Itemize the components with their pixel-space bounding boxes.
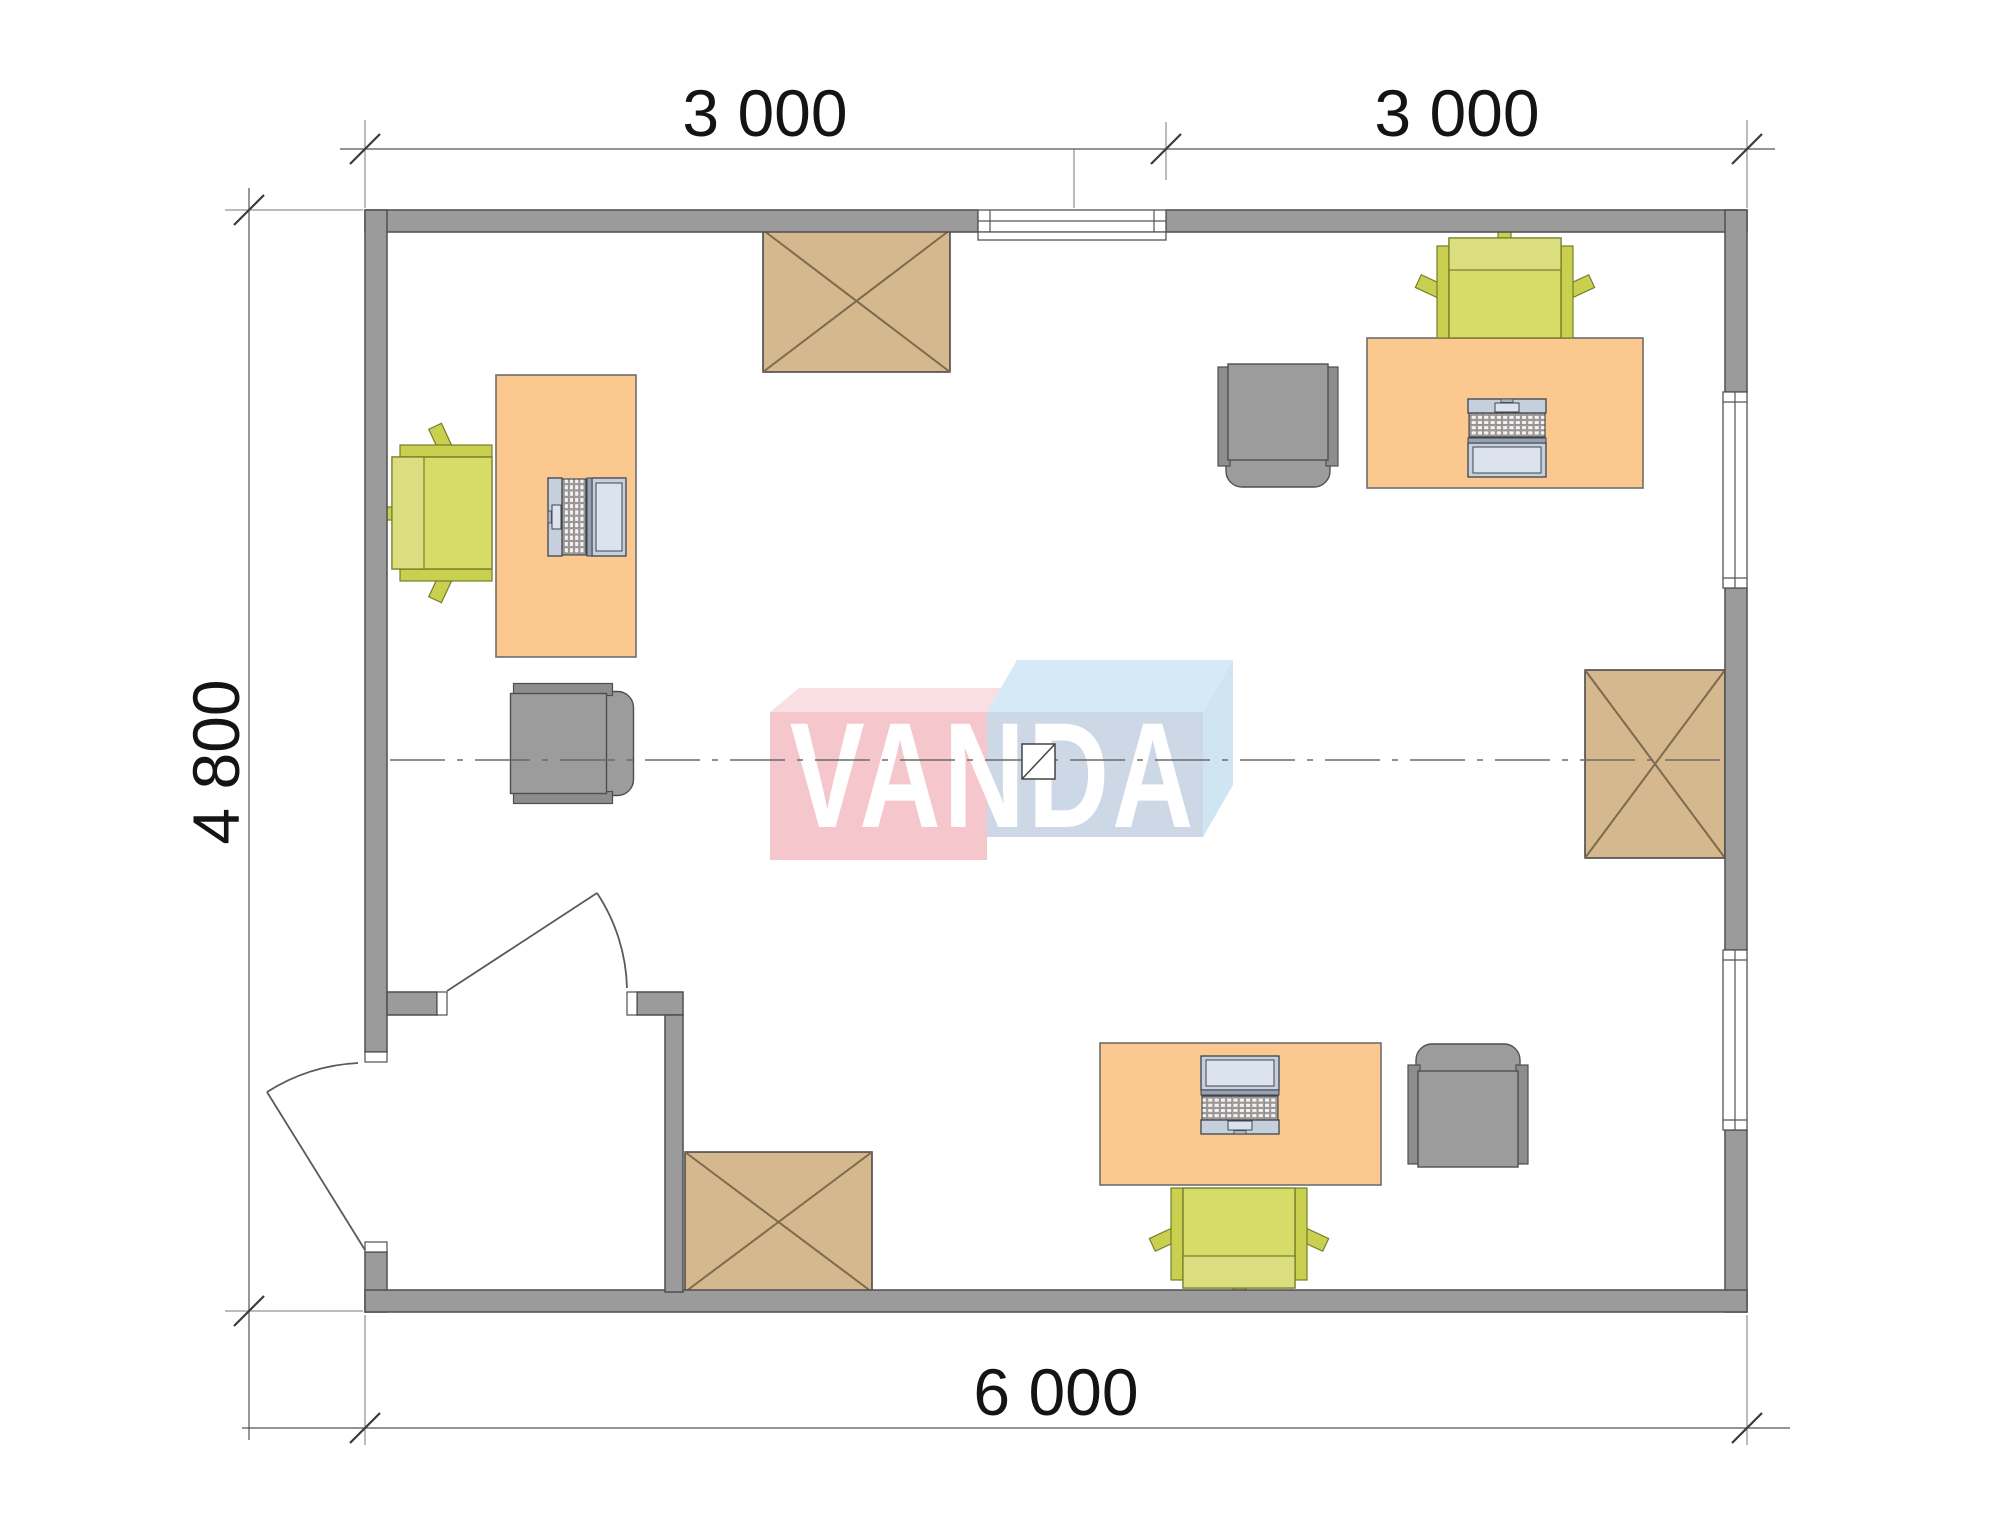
floor-plan-canvas: VANDA xyxy=(0,0,2000,1520)
wall-right-upper xyxy=(1725,210,1747,392)
dim-label-left: 4 800 xyxy=(179,679,253,844)
armchair-left xyxy=(511,684,634,804)
dim-label-top-right: 3 000 xyxy=(1374,76,1539,150)
jamb-entrance-door-top xyxy=(365,1052,387,1062)
wall-right-lower xyxy=(1725,1130,1747,1312)
window-top xyxy=(978,210,1166,240)
jamb-vestibule-door-right xyxy=(627,992,637,1015)
table-top-left xyxy=(763,230,950,372)
dimension-top: 3 000 3 000 xyxy=(340,76,1775,208)
partition-stub-left xyxy=(387,992,437,1015)
task-chair-left xyxy=(384,423,492,602)
table-bottom-left xyxy=(685,1152,872,1292)
wall-left-upper xyxy=(365,210,387,1052)
laptop-bottom xyxy=(1201,1056,1279,1134)
wall-top-left-segment xyxy=(365,210,978,232)
armchair-top-right xyxy=(1218,364,1338,487)
dimension-bottom: 6 000 xyxy=(242,1315,1790,1445)
jamb-entrance-door-bottom xyxy=(365,1242,387,1252)
task-chair-bottom xyxy=(1149,1188,1328,1296)
vestibule-door xyxy=(447,893,627,991)
wall-right-middle xyxy=(1725,588,1747,950)
jamb-vestibule-door-left xyxy=(437,992,447,1015)
partition-stub-right xyxy=(637,992,683,1015)
wall-top-right-segment xyxy=(1166,210,1747,232)
laptop-left xyxy=(548,478,626,556)
armchair-bottom-right xyxy=(1408,1044,1528,1167)
wall-bottom xyxy=(365,1290,1747,1312)
logo-wordmark: VANDA xyxy=(790,692,1197,859)
partition-vestibule xyxy=(665,1015,683,1292)
axis-marker xyxy=(1022,744,1055,779)
window-right-lower xyxy=(1723,950,1747,1130)
entrance-door xyxy=(267,1063,365,1250)
table-right xyxy=(1585,670,1725,858)
laptop-top-right xyxy=(1468,399,1546,477)
floor-plan-drawing: VANDA xyxy=(0,0,2000,1520)
dimension-left: 4 800 xyxy=(179,188,363,1440)
window-right-upper xyxy=(1723,392,1747,588)
dim-label-top-left: 3 000 xyxy=(682,76,847,150)
task-chair-top-right xyxy=(1415,230,1594,338)
dim-label-bottom: 6 000 xyxy=(973,1355,1138,1429)
